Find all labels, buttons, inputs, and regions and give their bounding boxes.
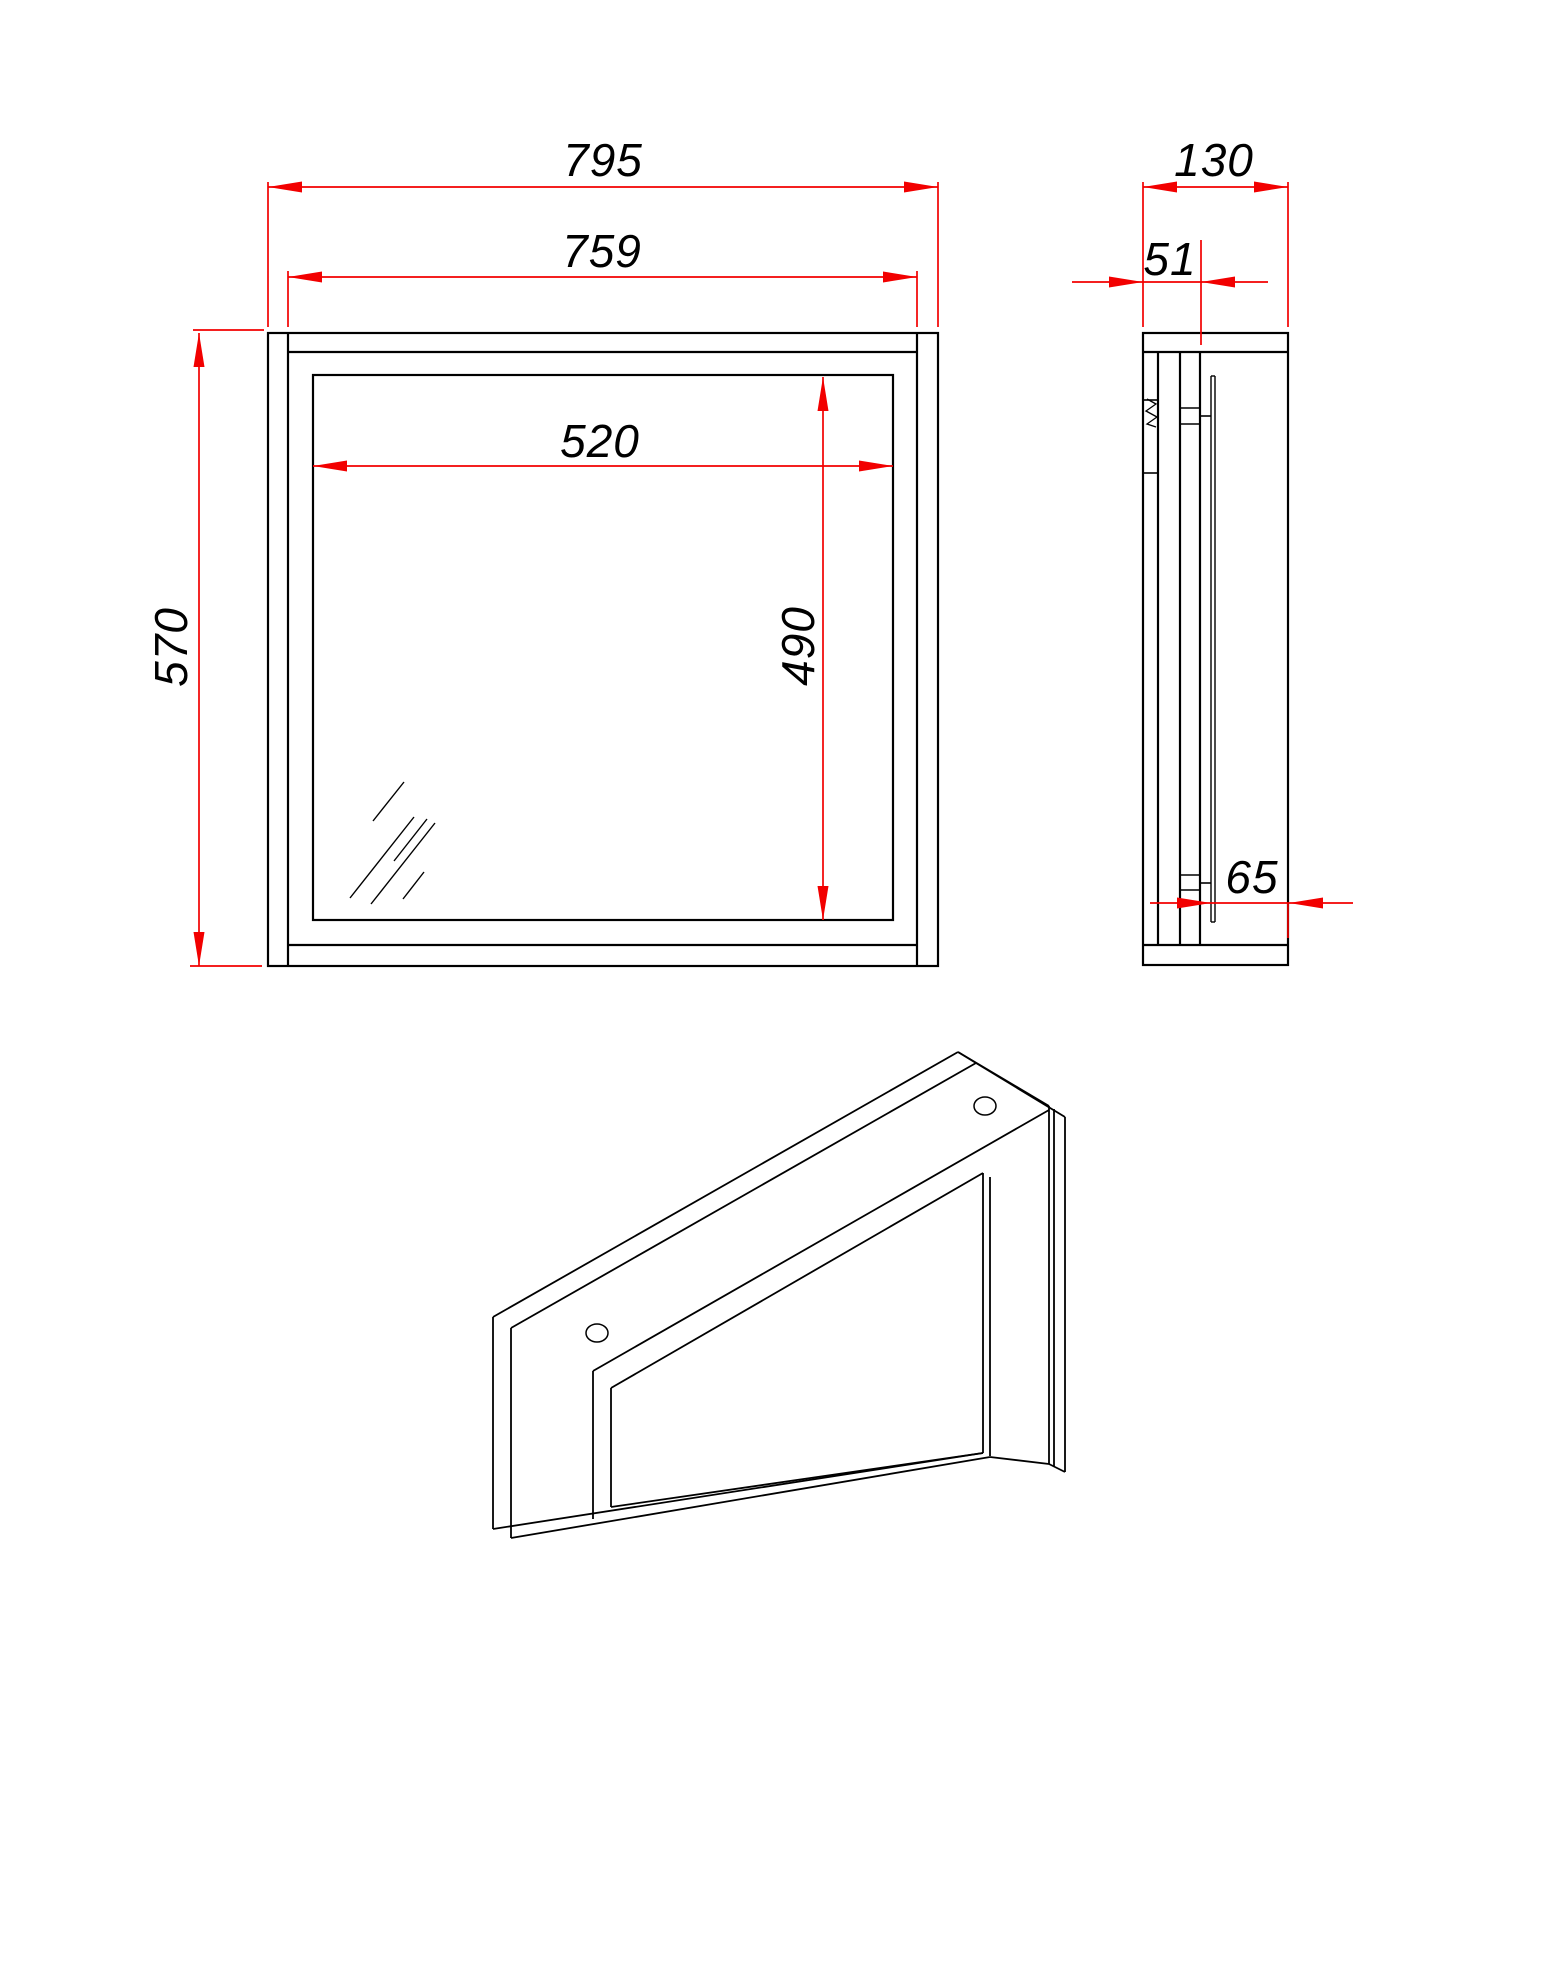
perspective-view <box>493 1052 1065 1538</box>
dim-label-side-depth: 130 <box>1174 137 1254 183</box>
dimension-arrowheads <box>194 182 1324 967</box>
dim-label-front-inner-width: 759 <box>562 228 642 274</box>
dim-label-side-back-offset: 51 <box>1143 236 1196 282</box>
dim-label-front-outer-width: 795 <box>563 137 643 183</box>
drawing-linework <box>0 0 1544 1980</box>
dimension-lines <box>190 182 1353 966</box>
side-upper-bracket <box>1180 408 1211 424</box>
side-lower-bracket <box>1180 875 1211 890</box>
mounting-clip-icon <box>1146 399 1157 427</box>
dim-label-mirror-opening-height: 490 <box>775 606 821 686</box>
side-mirror-glass-edge <box>1211 376 1215 922</box>
screw-hole-icon <box>974 1097 996 1115</box>
dim-label-side-front-recess: 65 <box>1225 854 1278 900</box>
screw-hole-icon <box>586 1324 608 1342</box>
dim-label-front-height: 570 <box>148 607 194 687</box>
drawing-sheet: 795 759 570 520 490 130 51 65 <box>0 0 1544 1980</box>
dim-label-mirror-opening-width: 520 <box>560 418 640 464</box>
glass-hatch-icon <box>350 782 435 904</box>
